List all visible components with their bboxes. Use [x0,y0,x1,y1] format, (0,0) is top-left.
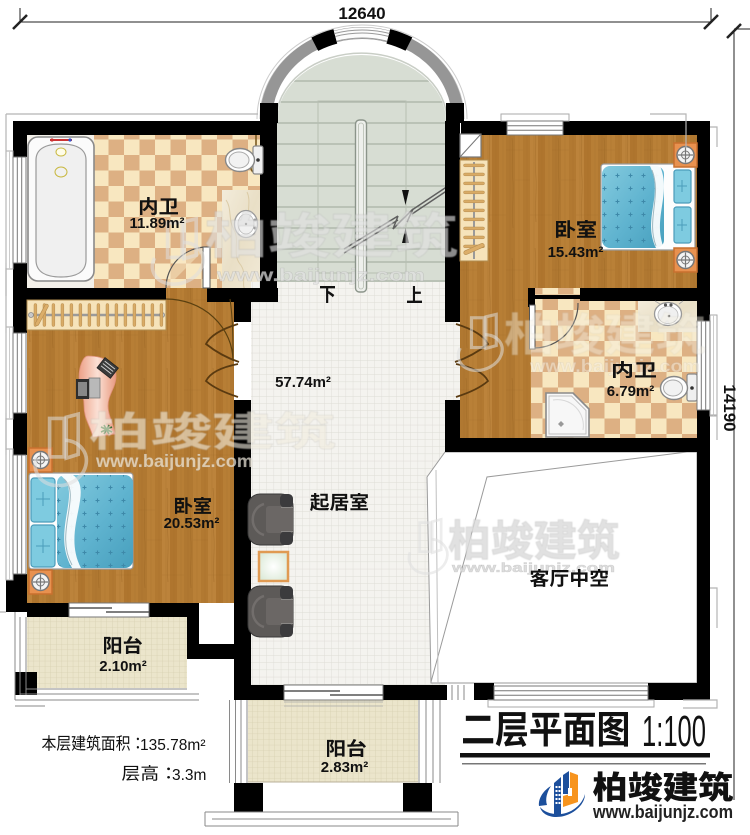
svg-text:www.baijunjz.com: www.baijunjz.com [95,451,253,471]
svg-text:www.baijunjz.com: www.baijunjz.com [216,265,425,285]
svg-text:20.53m²: 20.53m² [164,515,220,532]
svg-text:6.79m²: 6.79m² [607,383,655,400]
svg-text:15.43m²: 15.43m² [548,244,604,261]
svg-text:3.3m: 3.3m [172,767,206,784]
svg-text:1:100: 1:100 [642,707,706,756]
svg-text:2.10m²: 2.10m² [99,658,147,675]
svg-text:57.74m²: 57.74m² [275,374,331,391]
svg-text:www.baijunjz.com: www.baijunjz.com [592,802,733,822]
svg-text:11.89m²: 11.89m² [129,215,184,232]
svg-text:2.83m²: 2.83m² [321,759,369,776]
svg-text:12640: 12640 [338,4,385,23]
svg-text:135.78m²: 135.78m² [140,737,205,754]
svg-text:14190: 14190 [720,384,739,431]
